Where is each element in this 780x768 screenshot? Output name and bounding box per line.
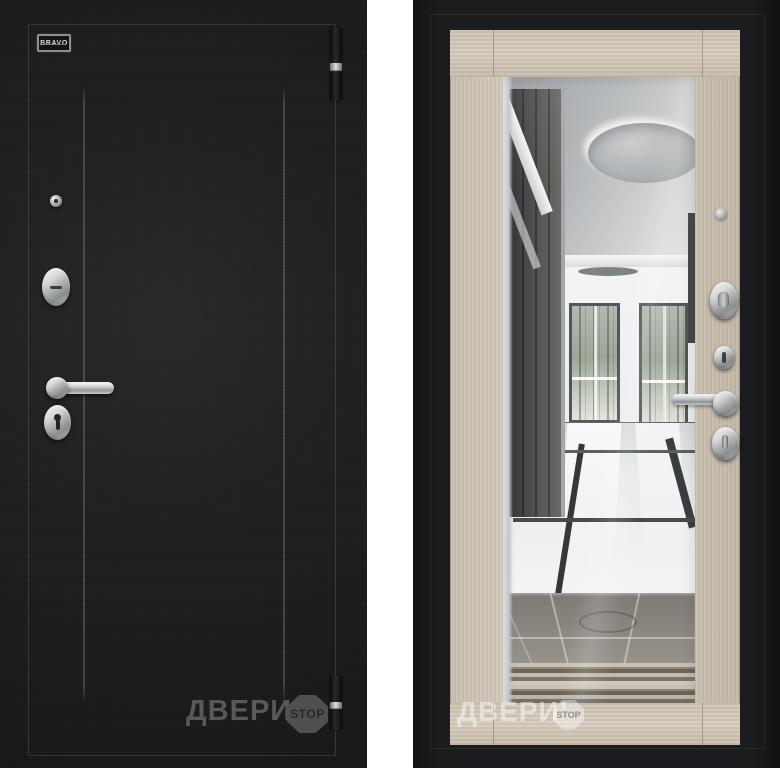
watermark-stop-label: STOP	[290, 707, 324, 721]
top-hinge-upper	[330, 28, 342, 63]
handle-rosette	[46, 377, 68, 399]
brand-badge-underline	[43, 44, 65, 45]
keyhole-escutcheon	[44, 405, 71, 440]
rail-seam	[493, 30, 494, 77]
right-door-interior-view[interactable]: ДВЕРИ’ STOP	[413, 0, 780, 768]
thumbturn-knob	[714, 346, 734, 369]
groove-line-left	[83, 85, 85, 703]
product-image: BRAVO ДВЕРИ’ STOP	[0, 0, 780, 768]
top-hinge-ring	[330, 63, 342, 71]
peephole	[715, 208, 727, 220]
mirror-glass-sheen	[503, 77, 695, 703]
peephole	[50, 195, 62, 207]
door-leaf-wood	[450, 30, 740, 745]
cylinder-cover	[710, 282, 738, 319]
rail-seam	[702, 703, 703, 745]
bottom-hinge-upper	[330, 676, 342, 702]
cylinder-thumb	[718, 292, 729, 308]
watermark-text: ДВЕРИ’	[457, 698, 568, 726]
watermark-stop-label: STOP	[556, 710, 580, 720]
watermark-text: ДВЕРИ’	[186, 697, 301, 726]
watermark-stop-octagon: STOP	[287, 695, 328, 733]
full-length-mirror	[503, 77, 695, 703]
thumbturn-slot	[722, 352, 726, 363]
keyhole-thumb	[722, 435, 728, 449]
left-door-exterior-view[interactable]: BRAVO ДВЕРИ’ STOP	[0, 0, 367, 768]
handle-rosette	[713, 391, 738, 416]
rail-seam	[702, 30, 703, 77]
image-divider	[367, 0, 413, 768]
top-hinge-lower	[330, 71, 342, 100]
groove-line-right	[283, 85, 285, 703]
keyhole-escutcheon	[712, 427, 739, 460]
cylinder-guard	[42, 268, 70, 306]
bottom-hinge-ring	[330, 702, 342, 709]
peephole-lens	[54, 199, 58, 203]
brand-badge: BRAVO	[37, 34, 71, 52]
keyhole-slot	[56, 419, 60, 430]
cylinder-slot	[50, 286, 62, 289]
bottom-hinge-lower	[330, 709, 342, 730]
